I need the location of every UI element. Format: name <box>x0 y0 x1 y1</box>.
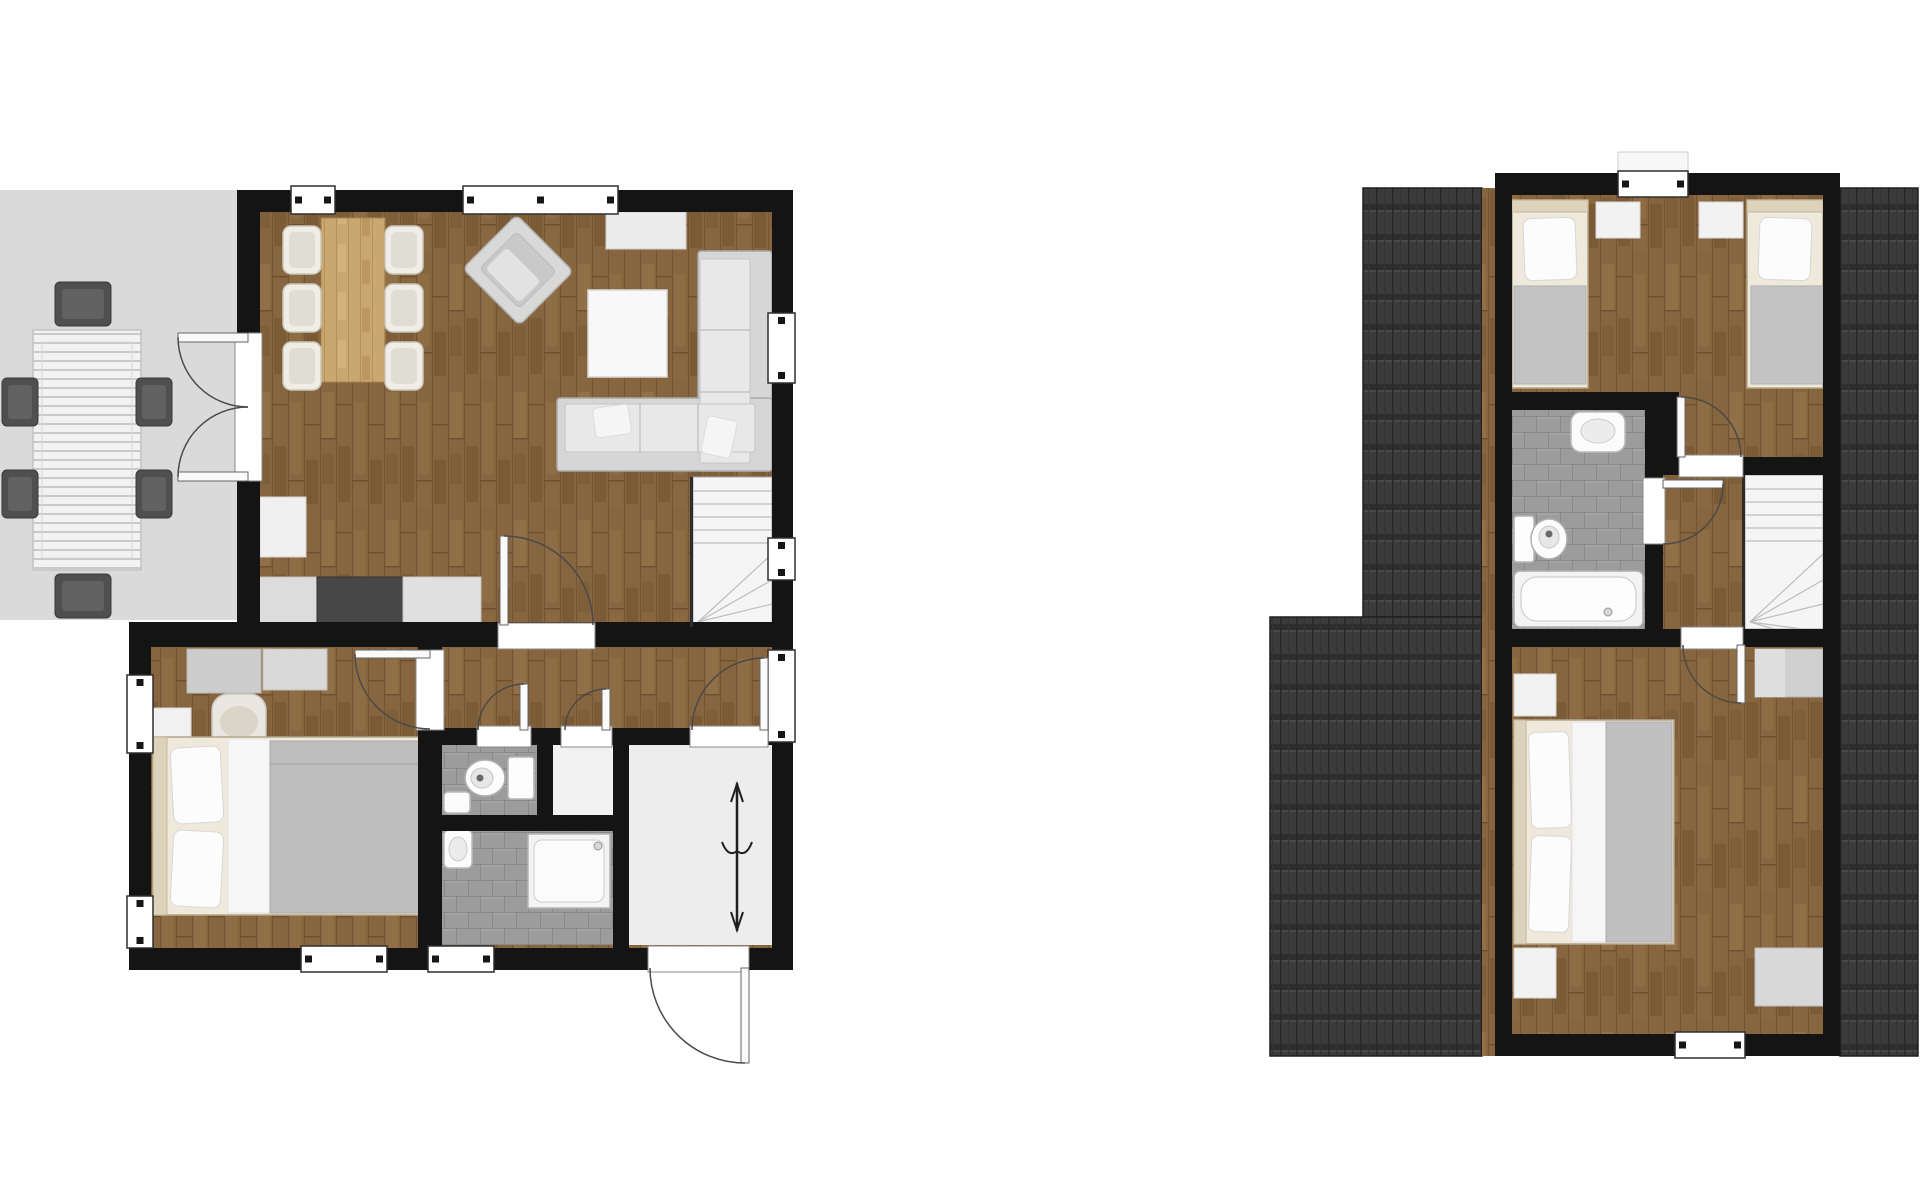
window-mullion <box>324 197 331 204</box>
wall <box>613 745 629 948</box>
terrace-chair-seat <box>142 385 166 419</box>
bathtub-drain <box>1604 608 1612 616</box>
coffee-table <box>588 290 667 377</box>
landing-floor <box>1663 475 1745 629</box>
door-threshold <box>690 726 768 747</box>
bathtub-inner <box>1521 577 1636 621</box>
window-mullion <box>295 197 302 204</box>
door-leaf <box>1663 480 1723 488</box>
door-leaf <box>602 689 610 730</box>
front-door-leaf <box>741 968 749 1063</box>
window-mullion <box>607 197 614 204</box>
door-threshold <box>1679 455 1743 477</box>
sofa-pillow <box>592 404 632 439</box>
bed-headboard <box>1747 200 1823 212</box>
window-frame <box>768 650 795 742</box>
window-mullion <box>778 317 785 324</box>
bed-headboard <box>1512 200 1588 212</box>
terrace-door-leaf <box>178 333 248 342</box>
bed-headboard <box>153 737 167 915</box>
side-cabinet <box>260 497 306 557</box>
window-frame <box>301 946 387 972</box>
bed-duvet <box>1606 722 1672 942</box>
sideboard <box>606 212 686 249</box>
dresser-accent <box>1755 649 1785 697</box>
roof <box>1840 188 1918 1056</box>
door-leaf <box>1677 397 1685 457</box>
wall <box>1495 1034 1840 1056</box>
window <box>463 186 618 214</box>
front-door-arc <box>650 968 745 1063</box>
window-mullion <box>778 731 785 738</box>
window <box>768 538 795 580</box>
staircase <box>693 477 772 627</box>
window-mullion <box>1679 1042 1686 1049</box>
bed-runner <box>228 739 270 913</box>
ground-floor-plan <box>0 186 795 1063</box>
terrace-chair-seat <box>62 581 104 611</box>
shower-drain <box>594 842 602 850</box>
window-mullion <box>137 679 144 686</box>
desk <box>187 649 261 693</box>
dining-chair-seat <box>289 232 315 268</box>
dining-chair-seat <box>391 290 417 326</box>
dining-chair-seat <box>289 290 315 326</box>
wall <box>537 745 553 815</box>
stair-stringer <box>1742 475 1745 629</box>
toilet-drain <box>477 775 484 782</box>
wc-sink <box>444 792 470 813</box>
terrace-chair-seat <box>142 477 166 511</box>
window-mullion <box>483 956 490 963</box>
staircase <box>1745 475 1823 629</box>
bed-duvet <box>1514 286 1586 384</box>
door-threshold <box>1643 478 1665 544</box>
upper-floor-plan <box>1270 152 1918 1058</box>
window <box>1675 1032 1745 1058</box>
door-leaf <box>760 658 768 730</box>
bed-headboard <box>1514 720 1526 944</box>
window-mullion <box>137 900 144 907</box>
door-threshold <box>498 623 595 649</box>
media-cabinet <box>403 577 481 624</box>
desk <box>263 649 327 690</box>
window-mullion <box>137 937 144 944</box>
window <box>768 650 795 742</box>
terrace-chair-seat <box>62 289 104 319</box>
window-mullion <box>1677 181 1684 188</box>
nightstand <box>1699 202 1743 238</box>
bed-runner <box>1572 722 1606 942</box>
closet-floor <box>553 745 613 815</box>
window-mullion <box>778 542 785 549</box>
bed-pillow <box>1523 217 1577 281</box>
wall <box>1512 629 1823 647</box>
bathroom-sink-basin <box>449 837 467 861</box>
terrace-chair-seat <box>8 477 32 511</box>
eave-strip <box>1482 188 1495 1056</box>
dining-chair-seat <box>289 348 315 384</box>
window <box>301 946 387 972</box>
window-mullion <box>537 197 544 204</box>
wall <box>442 815 613 831</box>
bed-pillow <box>1528 835 1571 932</box>
terrace-chair-seat <box>8 385 32 419</box>
window-mullion <box>778 569 785 576</box>
dresser <box>1755 948 1823 1006</box>
media-cabinet <box>250 577 317 627</box>
door-leaf <box>500 536 508 625</box>
window-mullion <box>305 956 312 963</box>
door-leaf <box>520 684 528 730</box>
window <box>127 896 153 948</box>
window-mullion <box>137 742 144 749</box>
window-mullion <box>778 372 785 379</box>
bed-pillow <box>1758 217 1812 281</box>
door-threshold <box>416 650 444 730</box>
roof <box>1363 188 1482 617</box>
window <box>127 675 153 753</box>
window-mullion <box>467 197 474 204</box>
window <box>768 313 795 383</box>
window <box>291 186 335 214</box>
bathroom-sink-basin <box>1581 419 1615 443</box>
toilet-drain <box>1546 531 1553 538</box>
wall <box>1512 392 1663 410</box>
window-mullion <box>778 654 785 661</box>
window-sill <box>1618 152 1688 172</box>
tv-unit <box>317 577 403 627</box>
floorplan-stage <box>0 0 1920 1200</box>
nightstand <box>1514 948 1556 998</box>
bed-pillow <box>1528 731 1571 828</box>
front-door-threshold <box>648 946 749 972</box>
bed-pillow <box>170 746 224 825</box>
bed-duvet <box>1751 286 1823 384</box>
window-mullion <box>376 956 383 963</box>
door-threshold <box>1681 627 1743 649</box>
door-leaf <box>355 650 430 658</box>
wall <box>129 622 793 647</box>
window-mullion <box>432 956 439 963</box>
terrace-table <box>33 330 141 570</box>
window-frame <box>127 675 153 753</box>
window-mullion <box>1734 1042 1741 1049</box>
stair-stringer <box>690 477 693 627</box>
wall <box>1495 173 1512 1056</box>
window-mullion <box>1622 181 1629 188</box>
dining-chair-seat <box>391 348 417 384</box>
wall <box>1823 173 1840 1056</box>
terrace-door-leaf <box>178 472 248 481</box>
dining-table <box>321 218 385 382</box>
nightstand <box>1514 674 1556 716</box>
door-leaf <box>1737 645 1745 703</box>
nightstand <box>1596 202 1640 238</box>
window <box>428 946 494 972</box>
window <box>1618 171 1688 197</box>
shower-tray-inner <box>534 840 604 902</box>
bed-duvet <box>270 741 423 913</box>
toilet-tank <box>508 757 534 799</box>
roof <box>1270 617 1482 1056</box>
bed-pillow <box>170 830 224 909</box>
dining-chair-seat <box>391 232 417 268</box>
desk-chair-seat <box>220 706 258 738</box>
floorplan-canvas <box>0 0 1920 1200</box>
